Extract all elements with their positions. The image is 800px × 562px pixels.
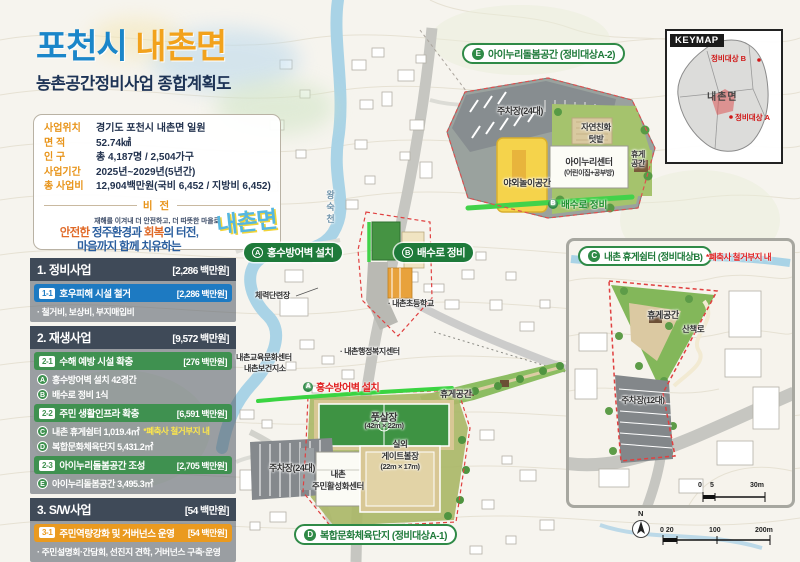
letter-badge-d: D <box>304 529 316 541</box>
label-line: (어린이집+공부방) <box>564 168 614 178</box>
rest-strip-label: 휴게공간 <box>440 387 472 400</box>
parking-24-label-d: 주차장(24대) <box>269 461 315 474</box>
section-title: 1. 정비사업 <box>37 261 91 278</box>
sub-item-text: 내촌 휴게쉼터 1,019.4㎡ <box>52 425 139 438</box>
inset-scale-5: 5 <box>710 482 714 489</box>
inset-parking-label: 주차장(12대) <box>621 394 664 406</box>
info-row: 인 구 총 4,187명 / 2,504가구 <box>44 151 270 166</box>
vision-statement: 안전한 정주환경과 회복의 터전, 마음까지 함께 치유하는 <box>44 226 214 254</box>
scale-200m: 200m <box>755 527 773 534</box>
item-3-1: 3-1 주민역량강화 및 거버넌스 운영 [54 백만원] <box>34 524 232 542</box>
keymap-target-b: 정비대상 B <box>711 53 746 64</box>
section-title: 3. S/W사업 <box>37 501 91 518</box>
item-2-1: 2-1 수해 예방 시설 확충 [276 백만원] <box>34 352 232 370</box>
letter-badge-c: C <box>37 426 48 437</box>
inset-trail-label: 산책로 <box>682 323 704 335</box>
item-label: 주민역량강화 및 거버넌스 운영 <box>59 526 174 540</box>
section-3: 3. S/W사업 [54 백만원] 3-1 주민역량강화 및 거버넌스 운영 [… <box>30 498 236 562</box>
project-info-box: 사업위치 경기도 포천시 내촌면 일원 면 적 52.74㎢ 인 구 총 4,1… <box>33 114 281 250</box>
demolished-barn-note: *폐축사 철거부지 내 <box>706 251 771 263</box>
vision-logo: 내촌면 <box>214 200 278 240</box>
item-code: 2-2 <box>39 408 55 419</box>
item-label: 주민 생활인프라 확충 <box>59 406 139 420</box>
scale-100: 100 <box>709 527 721 534</box>
section-3-header: 3. S/W사업 [54 백만원] <box>30 498 236 521</box>
item-code: 2-1 <box>39 356 55 367</box>
admin-center-label: · 내촌행정복지센터 <box>340 346 400 357</box>
sub-item-b: B 배수로 정비 1식 <box>37 388 229 401</box>
info-value: 12,904백만원(국비 6,452 / 지방비 6,452) <box>96 180 271 195</box>
info-row: 면 적 52.74㎢ <box>44 137 270 152</box>
item-label: 호우피해 시설 철거 <box>59 286 130 300</box>
sub-item-text: 아이누리돌봄공간 3,495.3㎡ <box>52 477 153 490</box>
keymap-title: KEYMAP <box>670 34 724 47</box>
sub-item-c: C 내촌 휴게쉼터 1,019.4㎡ *폐축사 철거부지 내 <box>37 425 229 438</box>
item-label: 아이누리돌봄공간 조성 <box>59 458 145 472</box>
inset-c-rest-shelter <box>566 238 795 508</box>
letter-badge-a: A <box>303 382 313 392</box>
letter-badge-e: E <box>37 478 48 489</box>
keymap: KEYMAP 내촌면 정비대상 B 정비대상 A <box>665 29 783 164</box>
info-label: 사업기간 <box>44 166 96 181</box>
sub-item-e: E 아이누리돌봄공간 3,495.3㎡ <box>37 477 229 490</box>
info-label: 인 구 <box>44 151 96 166</box>
letter-badge-c: C <box>588 250 600 262</box>
item-note: · 주민설명회·간담회, 선진지 견학, 거버넌스 구축·운영 <box>37 545 229 558</box>
section-amount: [2,286 백만원] <box>172 262 229 277</box>
plan-map-canvas: 포천시 내촌면 농촌공간정비사업 종합계획도 사업위치 경기도 포천시 내촌면 … <box>0 0 800 562</box>
scale-0-20: 0 20 <box>660 527 674 534</box>
gateball-label: 실외 게이트볼장 (22m × 17m) <box>380 438 419 471</box>
school-label: · 내촌초등학교 <box>388 298 434 309</box>
letter-badge-a: A <box>37 374 48 385</box>
section-1-header: 1. 정비사업 [2,286 백만원] <box>30 258 236 281</box>
header-d-sports-complex: D 복합문화체육단지 (정비대상A-1) <box>294 524 457 545</box>
vision-seg: 안전한 <box>60 227 90 239</box>
keymap-target-a: 정비대상 A <box>735 112 770 123</box>
callout-label: 복합문화체육단지 (정비대상A-1) <box>320 527 447 542</box>
section-2: 2. 재생사업 [9,572 백만원] 2-1 수해 예방 시설 확충 [276… <box>30 326 236 494</box>
title-city: 포천시 <box>36 28 127 66</box>
callout-label: 아이누리돌봄공간 (정비대상A-2) <box>488 46 615 61</box>
item-amount: [54 백만원] <box>188 526 227 539</box>
inset-scale-30m: 30m <box>750 482 764 489</box>
letter-badge-b: B <box>402 247 413 258</box>
item-2-2: 2-2 주민 생활인프라 확충 [6,591 백만원] <box>34 404 232 422</box>
sub-item-note: *폐축사 철거부지 내 <box>143 425 209 437</box>
vision-seg: 마음까지 함께 치유하는 <box>44 240 214 254</box>
callout-b-drainage: B 배수로 정비 <box>394 243 473 262</box>
info-row: 총 사업비 12,904백만원(국비 6,452 / 지방비 6,452) <box>44 180 270 195</box>
item-1-1: 1-1 호우피해 시설 철거 [2,286 백만원] <box>34 284 232 302</box>
edu-center-label: 내촌교육문화센터 <box>236 352 292 363</box>
sub-item-text: 배수로 정비 1식 <box>52 388 108 401</box>
info-row: 사업기간 2025년~2029년(5년간) <box>44 166 270 181</box>
item-2-3: 2-3 아이누리돌봄공간 조성 [2,705 백만원] <box>34 456 232 474</box>
info-value: 총 4,187명 / 2,504가구 <box>96 151 194 166</box>
label-line: 내촌 <box>312 468 364 480</box>
annotation-text: 홍수방어벽 설치 <box>316 379 379 394</box>
title-block: 포천시 내촌면 농촌공간정비사업 종합계획도 <box>36 30 231 94</box>
outdoor-play-label: 야외놀이공간 <box>503 176 550 189</box>
letter-badge-a: A <box>252 247 263 258</box>
item-amount: [2,705 백만원] <box>177 459 227 472</box>
item-amount: [6,591 백만원] <box>177 407 227 420</box>
title-district: 내촌면 <box>135 28 226 66</box>
info-row: 사업위치 경기도 포천시 내촌면 일원 <box>44 122 270 137</box>
river-label: 왕숙천 <box>324 190 337 226</box>
item-code: 3-1 <box>39 527 55 538</box>
sub-item-a: A 홍수방어벽 설치 42경간 <box>37 373 229 386</box>
inset-c-graphic <box>569 241 792 505</box>
sub-item-text: 복합문화체육단지 5,431.2㎡ <box>52 440 153 453</box>
daycare-center-label: 아이누리센터 (어린이집+공부방) <box>564 155 614 178</box>
inset-scale-0: 0 <box>698 482 702 489</box>
letter-badge-e: E <box>472 48 484 60</box>
parking-24-label-e: 주차장(24대) <box>497 104 543 117</box>
info-label: 사업위치 <box>44 122 96 137</box>
inset-rest-label: 휴게공간 <box>647 308 679 321</box>
callout-label: 내촌 휴게쉼터 (정비대상B) <box>604 249 702 263</box>
item-label: 수해 예방 시설 확충 <box>59 354 132 368</box>
letter-badge-d: D <box>37 441 48 452</box>
activation-center-label: 내촌 주민활성화센터 <box>312 468 364 492</box>
label-line: 주민활성화센터 <box>312 480 364 492</box>
label-line: 게이트볼장 <box>380 450 419 462</box>
vision-seg: 정주환경과 <box>89 227 143 239</box>
flood-wall-annotation: A 홍수방어벽 설치 <box>303 379 379 394</box>
north-label: N <box>638 509 643 518</box>
label-line: 아이누리센터 <box>564 155 614 168</box>
info-label: 면 적 <box>44 137 96 152</box>
vision-seg: 의 터전, <box>164 227 199 239</box>
info-label: 총 사업비 <box>44 180 96 195</box>
annotation-text: 배수로 정비 <box>561 197 607 211</box>
keymap-region-label: 내촌면 <box>707 88 738 103</box>
item-amount: [276 백만원] <box>183 355 227 368</box>
fitness-area-label: 체력단련장 <box>255 290 290 301</box>
item-code: 1-1 <box>39 288 55 299</box>
header-c-rest-shelter: C 내촌 휴게쉼터 (정비대상B) <box>578 246 712 266</box>
item-code: 2-3 <box>39 460 55 471</box>
letter-badge-b: B <box>548 199 558 209</box>
item-note: · 철거비, 보상비, 부지매입비 <box>37 305 229 318</box>
section-amount: [9,572 백만원] <box>172 330 229 345</box>
vision-seg: 회복 <box>144 227 164 239</box>
section-amount: [54 백만원] <box>185 502 229 517</box>
label-line: 실외 <box>380 438 419 450</box>
nature-garden-label: 자연친화 텃밭 <box>581 121 611 145</box>
info-value: 52.74㎢ <box>96 137 131 152</box>
rest-area-label-e: 휴게공간 <box>628 150 648 168</box>
sub-item-text: 홍수방어벽 설치 42경간 <box>52 373 136 386</box>
page-title: 포천시 내촌면 <box>36 30 231 66</box>
sub-item-d: D 복합문화체육단지 5,431.2㎡ <box>37 440 229 453</box>
label-line: 텃밭 <box>581 133 611 145</box>
header-e-daycare: E 아이누리돌봄공간 (정비대상A-2) <box>462 43 625 64</box>
vision-header: 비 전 <box>143 198 171 213</box>
health-center-label: 내촌보건지소 <box>244 363 286 374</box>
project-list-sidebar: 1. 정비사업 [2,286 백만원] 1-1 호우피해 시설 철거 [2,28… <box>30 258 236 562</box>
page-subtitle: 농촌공간정비사업 종합계획도 <box>36 70 231 94</box>
callout-a-flood-wall: A 홍수방어벽 설치 <box>244 243 342 262</box>
futsal-size-label: (42m × 22m) <box>364 421 403 430</box>
section-1: 1. 정비사업 [2,286 백만원] 1-1 호우피해 시설 철거 [2,28… <box>30 258 236 322</box>
info-value: 2025년~2029년(5년간) <box>96 166 195 181</box>
callout-label: 홍수방어벽 설치 <box>267 245 334 260</box>
item-amount: [2,286 백만원] <box>177 287 227 300</box>
info-value: 경기도 포천시 내촌면 일원 <box>96 122 206 137</box>
section-2-header: 2. 재생사업 [9,572 백만원] <box>30 326 236 349</box>
section-title: 2. 재생사업 <box>37 329 91 346</box>
letter-badge-b: B <box>37 389 48 400</box>
callout-label: 배수로 정비 <box>417 245 465 260</box>
label-line: 자연친화 <box>581 121 611 133</box>
drainage-annotation-e: B 배수로 정비 <box>548 197 607 211</box>
label-line: (22m × 17m) <box>380 462 419 471</box>
